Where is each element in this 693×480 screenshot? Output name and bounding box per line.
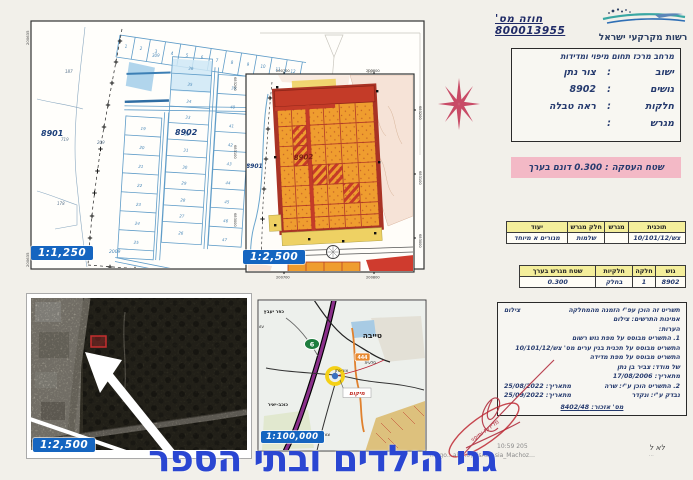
parcel-number: 43	[226, 161, 232, 166]
notes-prepared-row: 2. התשריט הוכן ע"י: שרה מתאריך: 25/08/20…	[504, 382, 680, 391]
plan-table-header: יעוד	[507, 222, 568, 233]
plan-table-header: חלק מגרש	[567, 222, 605, 233]
corner-note: לא ל …	[649, 443, 665, 458]
corner-note-sub: …	[649, 452, 665, 458]
overlay-headline: גני הילדים ובתי הספר	[90, 437, 555, 480]
grid-coordinate: 200700	[276, 276, 290, 280]
grid-coordinate: 683200	[418, 106, 422, 120]
site-info-box: מרחב מרכז תחום מיפוי ומדידות ישוב : צור …	[511, 48, 681, 142]
parcel-table-row: 8902 1 בחלק 0.300	[520, 277, 686, 288]
deal-area-note: שטח העסקה : 0.300 דונם בערך	[511, 157, 681, 178]
grid-coordinate: 200800	[366, 276, 380, 280]
parcel-number: 2009	[109, 249, 121, 255]
gush-8901-label: 8901	[41, 129, 63, 138]
notes-intro-side: צילום	[504, 306, 520, 315]
town-label: עזריאל	[256, 324, 264, 329]
plan-table-header: תוכנית	[628, 222, 685, 233]
notes-line: 1. התשריט מבוסס על מפת גוש רשום	[504, 334, 680, 343]
notes-line: אמינות התרשים: צילום	[504, 315, 680, 324]
parcel-number: 25	[134, 240, 140, 245]
grid-coordinate: 683100	[418, 171, 422, 185]
parcel-number: 26	[178, 230, 184, 235]
parcel-table-header: חלקיות	[596, 266, 633, 277]
info-value: ראה טבלה	[549, 101, 596, 112]
zoning-map-drawing: 200700 200800 200700 200800 683200 68310…	[238, 66, 426, 280]
notes-line: התשריט מבוסס על תכנית בנין ערים מס' צש/1…	[504, 344, 680, 353]
notes-intro-row: תשריט זה הוכן עפ"י הזמנה מהמחלקה צילום	[504, 306, 680, 315]
parcel-number: 27	[179, 213, 185, 218]
parcel-number: 7	[216, 58, 219, 63]
parcel-number: 719	[61, 137, 69, 142]
parcel-number: 36	[188, 66, 194, 71]
town-label: טייבה	[363, 331, 382, 340]
town-label: כפר יעבץ	[264, 310, 285, 315]
info-separator: :	[596, 84, 622, 95]
parcel-number: 2	[140, 46, 143, 51]
contract-number: חוזה מס' 800013955	[495, 13, 613, 37]
aerial-photo	[25, 292, 253, 460]
parcel-number: 4	[171, 51, 174, 56]
notes-line: הערות:	[504, 325, 680, 334]
info-label: גושים	[622, 84, 674, 95]
parcel-table-header: גוש	[656, 266, 686, 277]
plan-table-row: צש/10/101/12 שלמות מגורים א מיוחד	[507, 233, 686, 244]
notes-checked-row: נבדק ע"י: ונקדר מתאריך: 25/09/2022	[504, 391, 680, 400]
parcel-table-header-row: גוש חלקה חלקיות שטח מגרש בערך	[520, 266, 686, 277]
parcel-table-cell: 8902	[656, 277, 686, 288]
parcel-number: 20	[139, 145, 145, 150]
route-6-number: 6	[310, 341, 315, 349]
parcel-number: 28	[180, 197, 186, 202]
parcel-number: 309	[152, 53, 160, 58]
notes-reference-number: מס' אזכור: 8402/48	[504, 403, 680, 412]
info-label: ישוב	[622, 67, 674, 78]
parcel-number: 46	[223, 218, 229, 223]
plan-table-cell	[605, 233, 628, 244]
parcel-number: 178	[57, 201, 65, 206]
corner-coordinate-top: 200635	[25, 30, 30, 45]
parcel-table-cell: 1	[632, 277, 655, 288]
grid-coordinate: 200800	[366, 69, 380, 73]
parcel-number: 47	[222, 237, 228, 242]
route-6-shield: 6	[305, 339, 320, 350]
scale-badge-cadastral: 1:1,250	[31, 246, 93, 260]
authority-name: רשות מקרקעי ישראל	[597, 33, 689, 43]
corner-coordinate-bottom: 200635	[25, 252, 30, 267]
town-label: צור-נתן	[335, 368, 349, 373]
location-marker-label: מיקום	[349, 391, 366, 397]
parcel-number: 19	[140, 126, 146, 131]
parcel-table-header: שטח מגרש בערך	[520, 266, 596, 277]
notes-line: מתאריך: 17/08/2006	[504, 372, 680, 381]
info-label: חלקות	[622, 101, 674, 112]
parcel-number: 23	[136, 202, 142, 207]
grid-coordinate: 683000	[233, 213, 237, 227]
parcel-number: 24	[135, 221, 141, 226]
plan-table-header-row: תוכנית מגרש חלק מגרש יעוד	[507, 222, 686, 233]
plan-table: תוכנית מגרש חלק מגרש יעוד צש/10/101/12 ש…	[506, 221, 686, 244]
notes-checked-date: מתאריך: 25/09/2022	[504, 391, 571, 400]
info-separator: :	[596, 67, 622, 78]
gush-8901-label: 8901	[246, 163, 263, 170]
info-row-lot: מגרש :	[518, 118, 674, 129]
info-row-parcels: חלקות : ראה טבלה	[518, 101, 674, 112]
parcel-table-cell: 0.300	[520, 277, 596, 288]
info-value: 8902	[570, 84, 596, 95]
notes-line: של מודד: צביר בן נתן	[504, 363, 680, 372]
grid-coordinate: 200700	[276, 69, 290, 73]
plan-table-cell: מגורים א מיוחד	[507, 233, 568, 244]
authority-logo: רשות מקרקעי ישראל	[597, 7, 689, 43]
location-label-box: מיקום	[343, 388, 371, 398]
parcel-number: 41	[229, 123, 234, 128]
info-label: מגרש	[622, 118, 674, 129]
grid-coordinate: 683200	[233, 77, 237, 91]
gush-8902-label: 8902	[294, 153, 314, 162]
parcel-number: 40	[230, 104, 236, 109]
parcel-number: 44	[225, 180, 231, 185]
notes-prepared-by: 2. התשריט הוכן ע"י: שרה	[604, 382, 680, 391]
info-row-settlement: ישוב : צור נתן	[518, 67, 674, 78]
parcel-number: 42	[228, 142, 234, 147]
notes-intro: תשריט זה הוכן עפ"י הזמנה מהמחלקה	[568, 306, 680, 315]
parcel-number: 21	[138, 164, 143, 169]
plan-table-header: מגרש	[605, 222, 628, 233]
plan-table-cell: צש/10/101/12	[628, 233, 685, 244]
zoning-block: 8902	[262, 77, 382, 247]
parcel-table-cell: בחלק	[596, 277, 633, 288]
parcel-table-header: חלקה	[632, 266, 655, 277]
parcel-number: 31	[183, 147, 188, 152]
parcel-number: 209	[97, 140, 105, 145]
parcel-number: 22	[137, 183, 143, 188]
parcel-number: 187	[65, 69, 73, 74]
parcel-number: 8	[231, 60, 234, 65]
grid-coordinate: 683000	[418, 234, 422, 248]
parcel-number: 45	[224, 199, 230, 204]
gush-8902-label: 8902	[175, 128, 198, 137]
parcel-number: 35	[187, 82, 193, 87]
parcel-number: 6	[201, 55, 204, 60]
zoning-map-panel: 200700 200800 200700 200800 683200 68310…	[238, 66, 426, 280]
scale-badge-zoning: 1:2,500	[243, 250, 305, 264]
info-value: צור נתן	[563, 67, 596, 78]
scale-badge-aerial: 1:2,500	[33, 438, 95, 452]
corner-note-text: לא ל	[649, 443, 665, 452]
authority-logo-icon	[599, 7, 687, 29]
town-label: כוכב-יאיר	[268, 403, 289, 408]
notes-prepared-date: מתאריך: 25/08/2022	[504, 382, 571, 391]
parcel-number: 33	[185, 115, 191, 120]
parcel-number: 1	[125, 44, 128, 49]
plan-table-cell: שלמות	[567, 233, 605, 244]
info-row-blocks: גושים : 8902	[518, 84, 674, 95]
highlighted-parcel-outline	[91, 336, 106, 347]
aerial-photo-panel	[25, 292, 253, 460]
notes-line: התשריט מבוסס על מפת מדידה	[504, 353, 680, 362]
info-separator: :	[596, 118, 622, 129]
parcel-number: 34	[186, 99, 192, 104]
grid-coordinate: 683100	[233, 145, 237, 159]
compass-rose-icon	[438, 78, 480, 130]
scanned-land-document: { "header": { "contract_no": "חוזה מס' 8…	[0, 0, 693, 480]
info-separator: :	[596, 101, 622, 112]
town-label: סלעית	[365, 360, 377, 365]
info-box-title: מרחב מרכז תחום מיפוי ומדידות	[518, 52, 674, 61]
parcel-table: גוש חלקה חלקיות שטח מגרש בערך 8902 1 בחל…	[519, 265, 686, 288]
parcel-number: 29	[181, 180, 187, 185]
parcel-number: 30	[182, 164, 188, 169]
notes-checked-by: נבדק ע"י: ונקדר	[632, 391, 680, 400]
notes-box: תשריט זה הוכן עפ"י הזמנה מהמחלקה צילום א…	[497, 302, 687, 416]
